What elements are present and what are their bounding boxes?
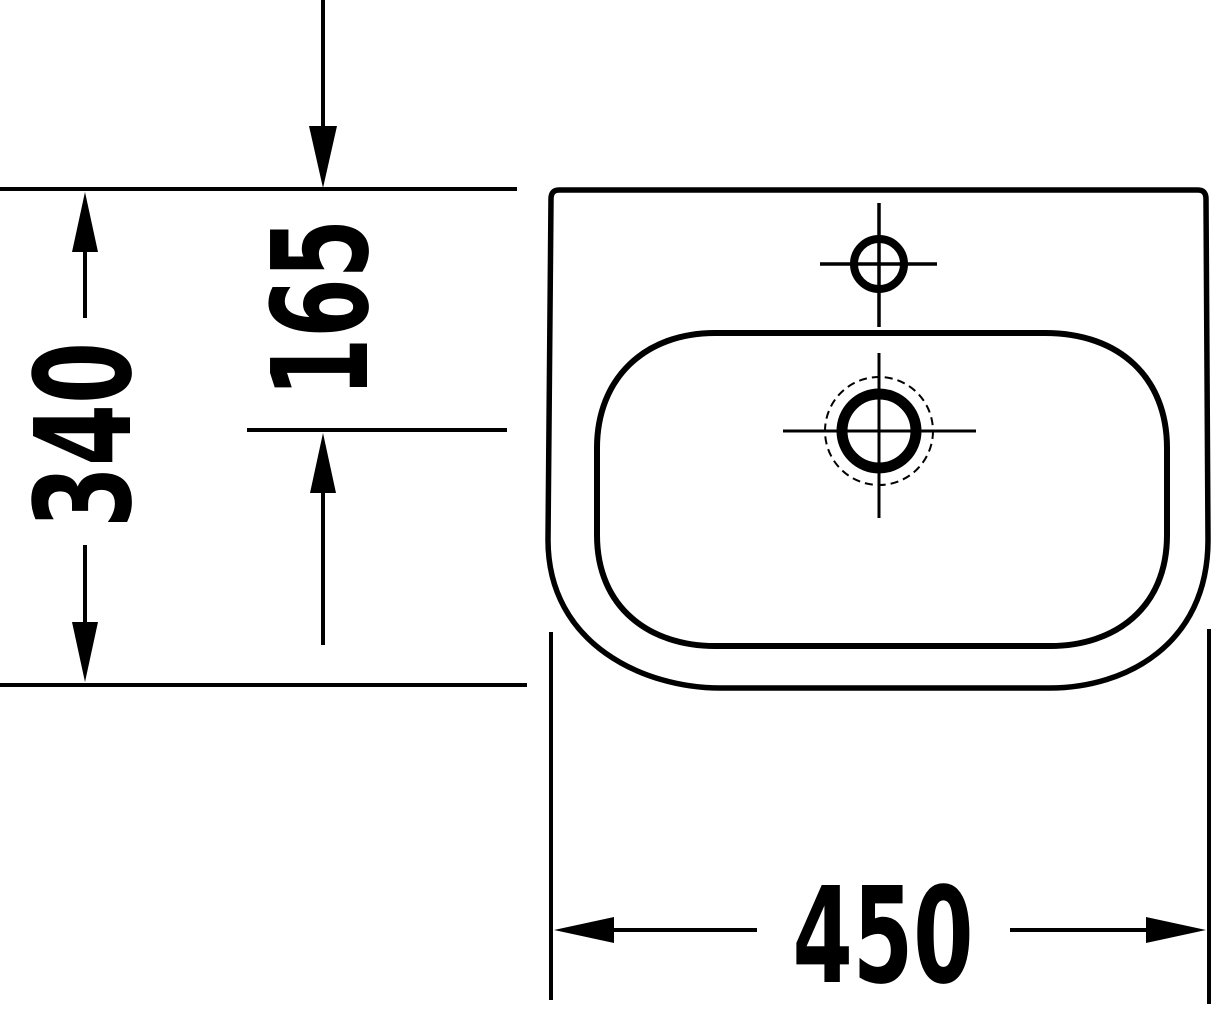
depth-dimension-label: 340	[8, 342, 162, 528]
technical-drawing: 340 165 450	[0, 0, 1214, 1012]
drawing-background	[0, 0, 1214, 1012]
drain-offset-dimension-label: 165	[245, 219, 399, 397]
width-dimension-label: 450	[793, 860, 974, 1012]
